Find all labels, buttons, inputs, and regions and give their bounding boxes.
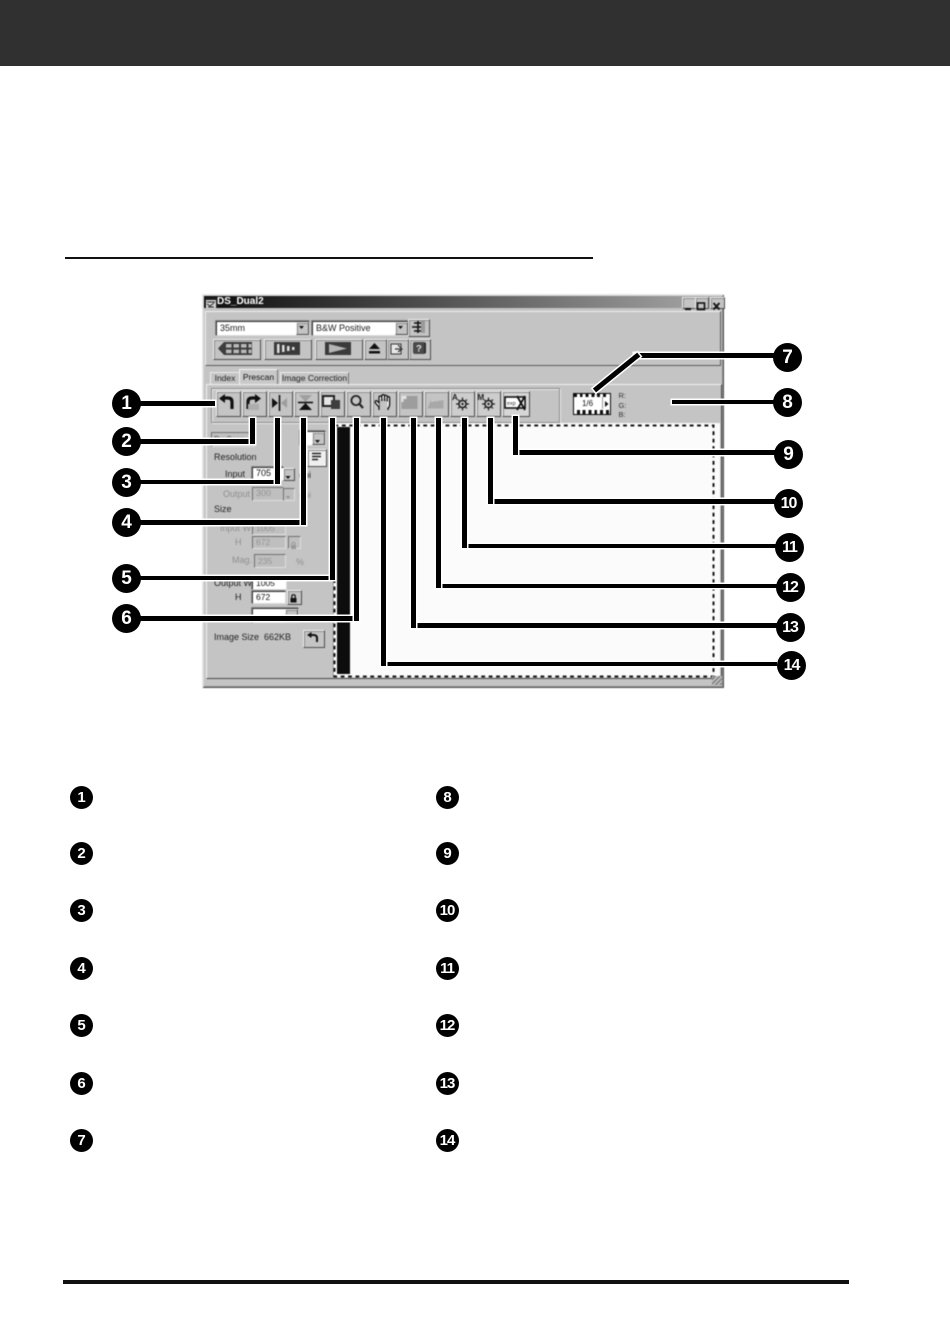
svg-text:M: M [478, 393, 485, 402]
svg-text:A: A [452, 393, 458, 402]
svg-text:?: ? [416, 344, 422, 355]
svg-text:exp: exp [507, 401, 516, 407]
